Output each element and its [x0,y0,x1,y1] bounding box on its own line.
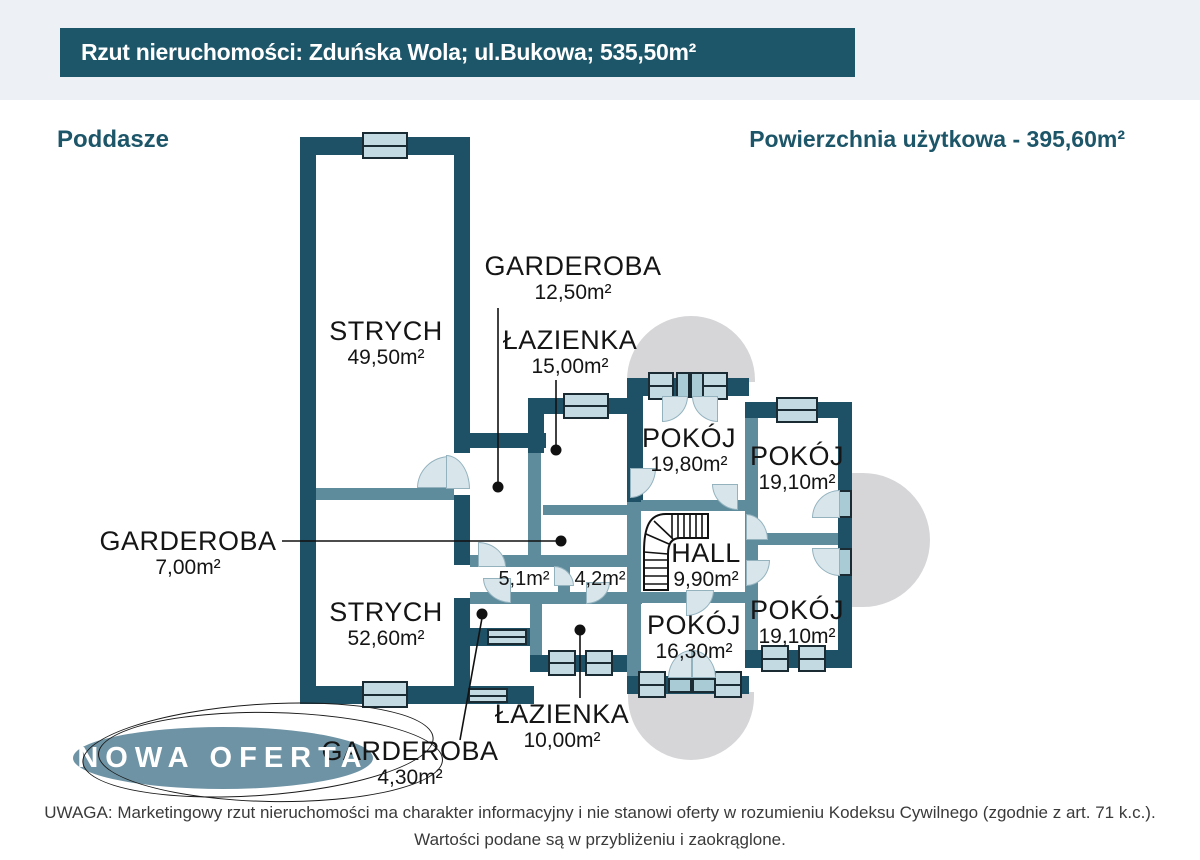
wall-segment [758,533,838,545]
door-arc-icon [746,560,770,586]
room-label-pokoj-bottom-right: POKÓJ 19,10m² [750,595,844,649]
window-icon [776,397,818,423]
door-panel-icon [692,678,716,693]
room-label-garderoba-left: GARDEROBA 7,00m² [99,526,276,580]
room-label-corridor-1: 5,1m² [498,568,549,590]
door-panel-icon [690,372,704,398]
room-label-lazienka-top: ŁAZIENKA 15,00m² [503,325,638,379]
wall-segment [528,453,541,563]
room-label-corridor-2: 4,2m² [574,568,625,590]
floor-label: Poddasze [57,126,169,154]
door-arc-icon [662,396,688,422]
door-panel-icon [676,372,690,398]
wall-segment [530,604,542,655]
balcony-bottom [628,692,754,760]
window-icon [362,132,408,159]
door-arc-icon [446,455,470,489]
room-label-strych-top: STRYCH 49,50m² [329,316,443,370]
room-label-garderoba-top: GARDEROBA 12,50m² [484,251,661,305]
wall-segment [627,502,641,676]
door-arc-icon [478,542,506,567]
window-icon [548,650,576,676]
room-label-pokoj-bottom-center: POKÓJ 16,30m² [647,610,741,664]
room-label-hall: HALL 9,90m² [671,538,741,592]
room-label-strych-bottom: STRYCH 52,60m² [329,597,443,651]
door-panel-icon [668,678,692,693]
balcony-right [850,473,930,607]
banner-title: Rzut nieruchomości: Zduńska Wola; ul.Buk… [81,39,696,66]
door-panel-icon [838,548,852,576]
window-icon [563,393,609,419]
door-arc-icon [746,514,768,540]
wall-segment [300,137,316,704]
window-icon [798,645,826,672]
leader-dot [477,609,488,620]
room-label-pokoj-top-center: POKÓJ 19,80m² [642,423,736,477]
room-label-lazienka-bottom: ŁAZIENKA 10,00m² [495,699,630,753]
window-icon [638,671,666,698]
window-icon [761,645,789,672]
leader-dot [575,625,586,636]
window-icon [487,629,527,645]
window-icon [714,671,742,698]
banner: Rzut nieruchomości: Zduńska Wola; ul.Buk… [60,28,855,77]
leader-dot [493,482,504,493]
floorplan-page: Rzut nieruchomości: Zduńska Wola; ul.Buk… [0,0,1200,860]
door-arc-icon [812,548,840,576]
disclaimer-line-2: Wartości podane są w przybliżeniu i zaok… [0,830,1200,850]
wall-segment [454,495,470,565]
window-icon [585,650,613,676]
wall-segment [454,137,470,453]
door-arc-icon [692,396,718,422]
window-icon [362,681,408,708]
wall-segment [530,655,630,672]
disclaimer-line-1: UWAGA: Marketingowy rzut nieruchomości m… [0,803,1200,823]
wall-segment [543,505,627,515]
leader-dot [556,536,567,547]
door-arc-icon [554,566,574,586]
leader-dot [551,445,562,456]
wall-segment [316,488,454,500]
usable-area-label: Powierzchnia użytkowa - 395,60m² [749,126,1125,153]
room-label-pokoj-top-right: POKÓJ 19,10m² [750,441,844,495]
